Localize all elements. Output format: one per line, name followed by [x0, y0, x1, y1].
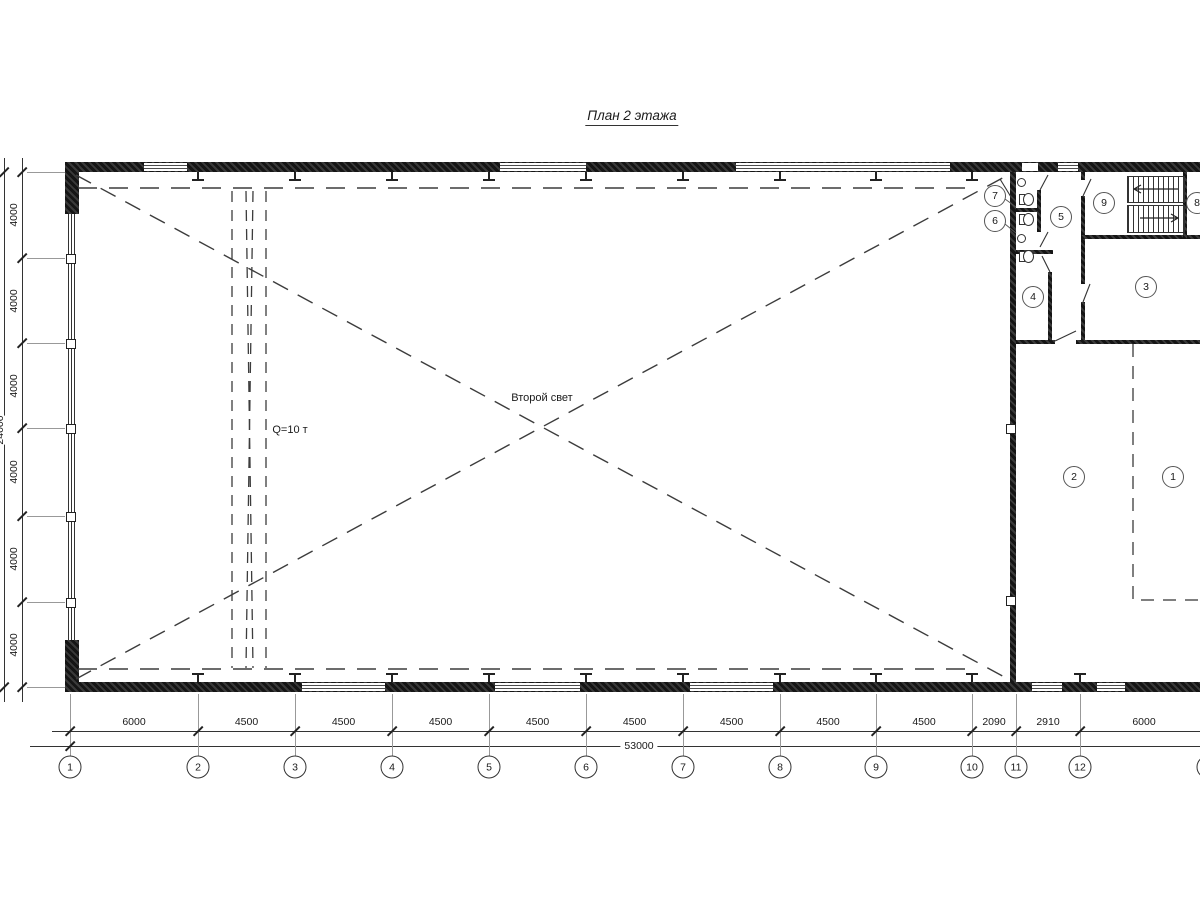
room-number-bubble: 2: [1063, 466, 1085, 488]
grid-axis-bubble: 5: [478, 756, 501, 779]
column-ibeam: [391, 675, 393, 682]
dimension-value: 4500: [720, 716, 743, 728]
grid-axis-bubble: 9: [865, 756, 888, 779]
axis-extension-line: [27, 172, 65, 173]
column-ibeam: [197, 675, 199, 682]
axis-extension-line: [1080, 694, 1081, 756]
column-ibeam: [294, 675, 296, 682]
column-ibeam: [585, 172, 587, 179]
column-ibeam: [870, 179, 882, 181]
column-ibeam: [488, 675, 490, 682]
dimension-value: 4500: [623, 716, 646, 728]
dimension-value: 4000: [8, 460, 20, 483]
dimension-value: 4500: [332, 716, 355, 728]
room-number-bubble: 9: [1093, 192, 1115, 214]
column-ibeam: [580, 179, 592, 181]
axis-extension-line: [780, 694, 781, 756]
axis-extension-line: [683, 694, 684, 756]
axis-extension-line: [295, 694, 296, 756]
floor-plan-canvas: План 2 этажа: [0, 0, 1200, 900]
column-ibeam: [966, 179, 978, 181]
room-number-bubble: 1: [1162, 466, 1184, 488]
column-ibeam: [1079, 675, 1081, 682]
axis-extension-line: [27, 602, 65, 603]
grid-axis-bubble: 12: [1069, 756, 1092, 779]
dimension-value: 4500: [526, 716, 549, 728]
dimension-value: 4500: [816, 716, 839, 728]
grid-axis-bubble: 2: [187, 756, 210, 779]
column-ibeam: [677, 179, 689, 181]
axis-extension-line: [876, 694, 877, 756]
total-dimension-label: 53000: [620, 740, 657, 752]
leader-line: [1005, 199, 1016, 207]
stair-arrow-down-icon: [1140, 214, 1178, 222]
dimension-value: 4500: [235, 716, 258, 728]
axis-extension-line: [27, 516, 65, 517]
room-number-bubble: 3: [1135, 276, 1157, 298]
room-number-bubble: 6: [984, 210, 1006, 232]
room-number-bubble: 7: [984, 185, 1006, 207]
grid-axis-bubble: 6: [575, 756, 598, 779]
column-ibeam: [774, 179, 786, 181]
grid-axis-bubble: 10: [961, 756, 984, 779]
door-leaf: [1040, 175, 1048, 190]
axis-extension-line: [27, 428, 65, 429]
dimension-value: 6000: [1132, 716, 1155, 728]
axis-extension-line: [972, 694, 973, 756]
grid-axis-bubble: 7: [672, 756, 695, 779]
column-ibeam: [682, 172, 684, 179]
dimension-value: 2910: [1036, 716, 1059, 728]
door-leaf: [1083, 284, 1090, 302]
room-number-bubble: 5: [1050, 206, 1072, 228]
axis-extension-line: [1016, 694, 1017, 756]
grid-axis-bubble: 3: [284, 756, 307, 779]
grid-axis-bubble: 1: [59, 756, 82, 779]
room-number-bubble: 4: [1022, 286, 1044, 308]
leader-line: [1005, 224, 1016, 233]
column-ibeam: [197, 172, 199, 179]
stair-arrow-up-icon: [1134, 185, 1178, 193]
door-leaf: [1055, 331, 1076, 341]
grid-axis-bubble: 8: [769, 756, 792, 779]
second-light-label: Второй свет: [511, 392, 572, 404]
dimension-value: 2090: [982, 716, 1005, 728]
column-ibeam: [192, 179, 204, 181]
grid-axis-bubble: 4: [381, 756, 404, 779]
dimension-value: 4000: [8, 203, 20, 226]
column-ibeam: [488, 172, 490, 179]
axis-extension-line: [198, 694, 199, 756]
dimension-value: 4000: [8, 633, 20, 656]
column-ibeam: [875, 172, 877, 179]
column-ibeam: [294, 172, 296, 179]
axis-extension-line: [489, 694, 490, 756]
dimension-value: 4000: [8, 374, 20, 397]
dimension-value: 4000: [8, 289, 20, 312]
door-leaf: [1040, 232, 1048, 247]
crane-capacity-label: Q=10 т: [272, 424, 307, 436]
column-ibeam: [875, 675, 877, 682]
column-ibeam: [682, 675, 684, 682]
grid-axis-bubble: 11: [1005, 756, 1028, 779]
axis-extension-line: [586, 694, 587, 756]
column-ibeam: [585, 675, 587, 682]
left-dimension-line: [22, 158, 23, 702]
axis-extension-line: [27, 343, 65, 344]
dimension-value: 4500: [429, 716, 452, 728]
column-ibeam: [289, 179, 301, 181]
column-ibeam: [386, 179, 398, 181]
dimension-value: 6000: [122, 716, 145, 728]
column-ibeam: [971, 675, 973, 682]
column-ibeam: [483, 179, 495, 181]
axis-extension-line: [27, 687, 65, 688]
axis-extension-line: [27, 258, 65, 259]
bottom-dimension-line: [52, 731, 1200, 732]
column-ibeam: [779, 172, 781, 179]
dimension-value: 4500: [912, 716, 935, 728]
column-ibeam: [391, 172, 393, 179]
door-leaf: [1042, 256, 1050, 272]
dimension-value: 4000: [8, 547, 20, 570]
column-ibeam: [971, 172, 973, 179]
bottom-total-dimension-line: [30, 746, 1200, 747]
door-leaf: [1083, 179, 1091, 196]
column-ibeam: [779, 675, 781, 682]
axis-extension-line: [392, 694, 393, 756]
left-total-dimension-label: 24000: [0, 415, 6, 444]
